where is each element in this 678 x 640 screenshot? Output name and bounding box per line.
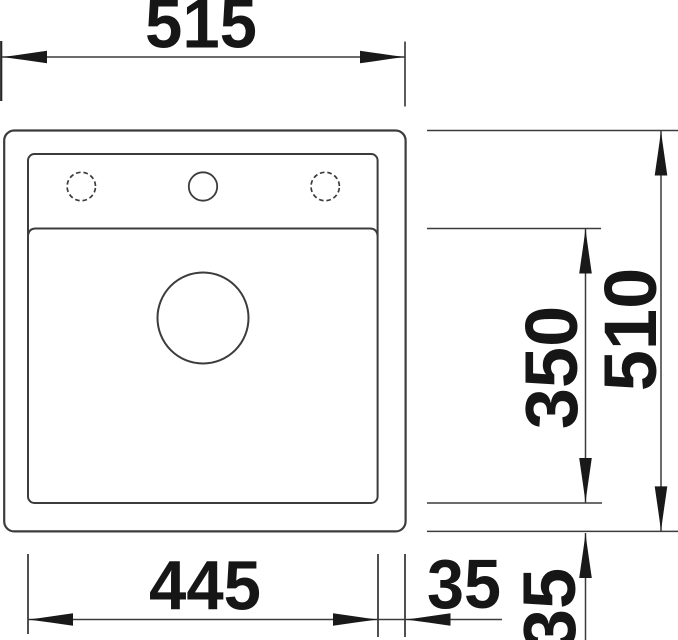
svg-text:35: 35 bbox=[508, 568, 591, 640]
svg-text:350: 350 bbox=[510, 306, 593, 429]
svg-text:510: 510 bbox=[589, 268, 672, 391]
svg-text:35: 35 bbox=[427, 545, 501, 623]
svg-text:515: 515 bbox=[145, 0, 257, 63]
svg-text:445: 445 bbox=[149, 547, 261, 625]
